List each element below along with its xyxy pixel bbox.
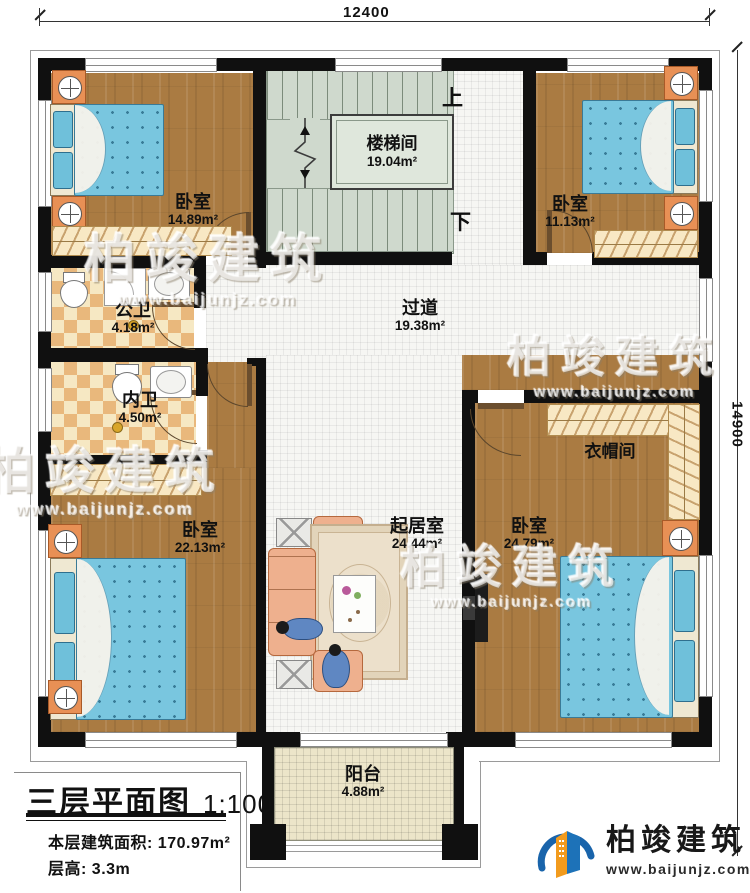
floor-area-label: 本层建筑面积: xyxy=(48,835,153,852)
company-website: www.baijunjz.com xyxy=(606,861,750,877)
flower-decor xyxy=(354,592,361,599)
dimension-height: 14900 xyxy=(729,395,746,455)
nightstand xyxy=(664,66,698,100)
window xyxy=(38,368,52,432)
room-area: 19.38m² xyxy=(395,318,445,333)
pillow xyxy=(54,572,75,634)
outline-left xyxy=(30,50,31,762)
lamp-icon xyxy=(670,202,694,226)
person-head xyxy=(276,621,289,634)
room-area: 4.50m² xyxy=(119,410,162,425)
floor-area-row: 本层建筑面积: 170.97m² xyxy=(48,829,230,853)
wall-public-bath-right xyxy=(194,255,206,308)
outline-balcony-right xyxy=(480,761,481,868)
table-decor xyxy=(348,618,352,622)
wall-stairs-left xyxy=(253,60,266,268)
extension-line xyxy=(709,8,710,26)
room-name: 卧室 xyxy=(175,192,211,212)
flower-decor xyxy=(342,586,351,595)
window xyxy=(567,58,669,72)
label-cloakroom: 衣帽间 xyxy=(585,442,636,461)
room-area: 24.79m² xyxy=(504,536,554,551)
person-lying xyxy=(283,618,323,640)
floor-area-value: 170.97m² xyxy=(158,835,231,852)
dimension-line-top xyxy=(40,21,710,22)
nightstand xyxy=(662,520,698,556)
outline-right xyxy=(719,50,720,762)
stair-direction-arrow-up xyxy=(300,126,310,135)
label-bedroom-bottom-right: 卧室 24.79m² xyxy=(504,516,554,551)
room-area: 24.44m² xyxy=(392,536,442,551)
room-name: 过道 xyxy=(402,298,438,318)
balcony-railing xyxy=(286,845,446,846)
room-area: 4.88m² xyxy=(342,784,385,799)
toilet-bowl xyxy=(60,280,88,308)
label-public-bathroom: 公卫 4.18m² xyxy=(112,300,155,335)
bed xyxy=(582,100,696,192)
side-table xyxy=(276,660,312,689)
balcony-column xyxy=(250,824,286,860)
wall-bedroom-tl-bottom xyxy=(38,255,205,268)
cloakroom-wardrobe-right xyxy=(668,404,700,520)
dimension-width: 12400 xyxy=(343,4,390,21)
title-underline-thin xyxy=(26,820,226,821)
window xyxy=(699,90,713,202)
label-bedroom-top-right: 卧室 11.13m² xyxy=(545,194,595,229)
label-living-room: 起居室 24.44m² xyxy=(390,516,444,551)
balcony-sliding-door xyxy=(300,733,448,747)
wardrobe xyxy=(594,230,698,258)
balcony-railing xyxy=(286,851,446,852)
wall-stub xyxy=(248,255,253,268)
pillow xyxy=(675,108,695,145)
table-decor xyxy=(356,610,360,614)
wall-bedroom-bl-right xyxy=(256,358,266,732)
logo-building-icon xyxy=(536,820,596,882)
company-logo: 柏竣建筑 www.baijunjz.com xyxy=(536,818,741,884)
sink-basin xyxy=(154,272,184,296)
person-head xyxy=(329,644,341,656)
window xyxy=(335,58,442,72)
outline-bottom-right xyxy=(479,761,720,762)
nightstand xyxy=(52,70,86,104)
outline-bottom-left xyxy=(30,761,247,762)
room-name: 楼梯间 xyxy=(367,134,418,154)
label-bedroom-top-left: 卧室 14.89m² xyxy=(168,192,218,227)
pillow xyxy=(53,111,73,148)
floor-height-label: 层高: xyxy=(48,861,87,878)
pillow xyxy=(53,152,73,189)
lamp-icon xyxy=(669,527,693,551)
room-name: 衣帽间 xyxy=(585,442,636,461)
window xyxy=(699,278,713,362)
hallway-floor-band xyxy=(206,265,699,362)
wall-between-bathrooms xyxy=(38,348,208,362)
cloakroom-vestibule xyxy=(462,355,699,390)
toilet xyxy=(60,272,88,308)
label-bedroom-bottom-left: 卧室 22.13m² xyxy=(175,520,225,555)
floor-plan: 12400 14900 楼梯间 19.04m² 上 下 xyxy=(0,0,750,893)
wall-bedroom-tr-bottom xyxy=(523,252,547,265)
lamp-icon xyxy=(54,530,78,554)
logo-text-block: 柏竣建筑 www.baijunjz.com xyxy=(606,826,750,877)
shower-curve xyxy=(107,271,134,295)
room-area: 22.13m² xyxy=(175,540,225,555)
wardrobe xyxy=(52,226,232,256)
outline-balcony-bottom xyxy=(246,867,481,868)
nightstand xyxy=(52,196,86,230)
label-private-bathroom: 内卫 4.50m² xyxy=(119,390,162,425)
wall-below-stairs xyxy=(253,252,452,265)
wall-bedroom-tr-left xyxy=(523,60,536,265)
window xyxy=(38,272,52,332)
room-name: 内卫 xyxy=(122,390,158,410)
stair-up-label: 上 xyxy=(442,82,463,112)
dimension-tick xyxy=(34,9,45,20)
window xyxy=(699,555,713,697)
nightstand xyxy=(48,524,82,558)
label-balcony: 阳台 4.88m² xyxy=(342,764,385,799)
room-area: 4.18m² xyxy=(112,320,155,335)
window xyxy=(85,58,217,72)
pillow xyxy=(674,640,695,702)
room-name: 卧室 xyxy=(552,194,588,214)
room-name: 卧室 xyxy=(511,516,547,536)
room-name: 公卫 xyxy=(115,300,151,320)
window xyxy=(85,732,237,748)
lamp-icon xyxy=(58,76,82,100)
company-name: 柏竣建筑 xyxy=(606,826,750,856)
dimension-tick xyxy=(704,9,715,20)
floor-height-value: 3.3m xyxy=(92,861,130,878)
floor-height-row: 层高: 3.3m xyxy=(48,855,130,879)
label-hallway: 过道 19.38m² xyxy=(395,298,445,333)
sink xyxy=(148,268,190,300)
room-name: 卧室 xyxy=(182,520,218,540)
pillow xyxy=(675,149,695,186)
balcony-column xyxy=(442,824,478,860)
bed xyxy=(560,556,697,716)
coffee-table xyxy=(333,575,376,633)
lamp-icon xyxy=(54,686,78,710)
wall-bedroom-br-left xyxy=(462,403,475,732)
bed xyxy=(50,104,162,194)
outline-top xyxy=(30,50,720,51)
nightstand xyxy=(48,680,82,714)
wardrobe xyxy=(50,464,202,496)
tv xyxy=(475,574,488,642)
pillow xyxy=(674,570,695,632)
side-table xyxy=(276,518,312,547)
lamp-icon xyxy=(58,202,82,226)
stair-direction-arrow-down xyxy=(300,170,310,179)
tv-mount xyxy=(463,596,475,620)
room-name: 阳台 xyxy=(345,764,381,784)
title-underline-thick xyxy=(26,813,226,817)
stairwell-label-box: 楼梯间 19.04m² xyxy=(330,114,454,190)
room-area: 14.89m² xyxy=(168,212,218,227)
wall-bedroom-br-top xyxy=(462,390,478,403)
title-block: 三层平面图1:100 本层建筑面积: 170.97m² 层高: 3.3m xyxy=(14,772,241,891)
stair-down-label: 下 xyxy=(450,206,471,236)
room-name: 起居室 xyxy=(390,516,444,536)
cloakroom-wardrobe-top xyxy=(547,404,672,436)
lamp-icon xyxy=(670,72,694,96)
room-area: 11.13m² xyxy=(545,214,595,229)
room-area: 19.04m² xyxy=(367,154,417,170)
wall-bedroom-br-top xyxy=(524,390,699,403)
nightstand xyxy=(664,196,698,230)
stair-flight-lower xyxy=(266,188,454,252)
window xyxy=(515,732,672,748)
extension-line xyxy=(39,8,40,26)
